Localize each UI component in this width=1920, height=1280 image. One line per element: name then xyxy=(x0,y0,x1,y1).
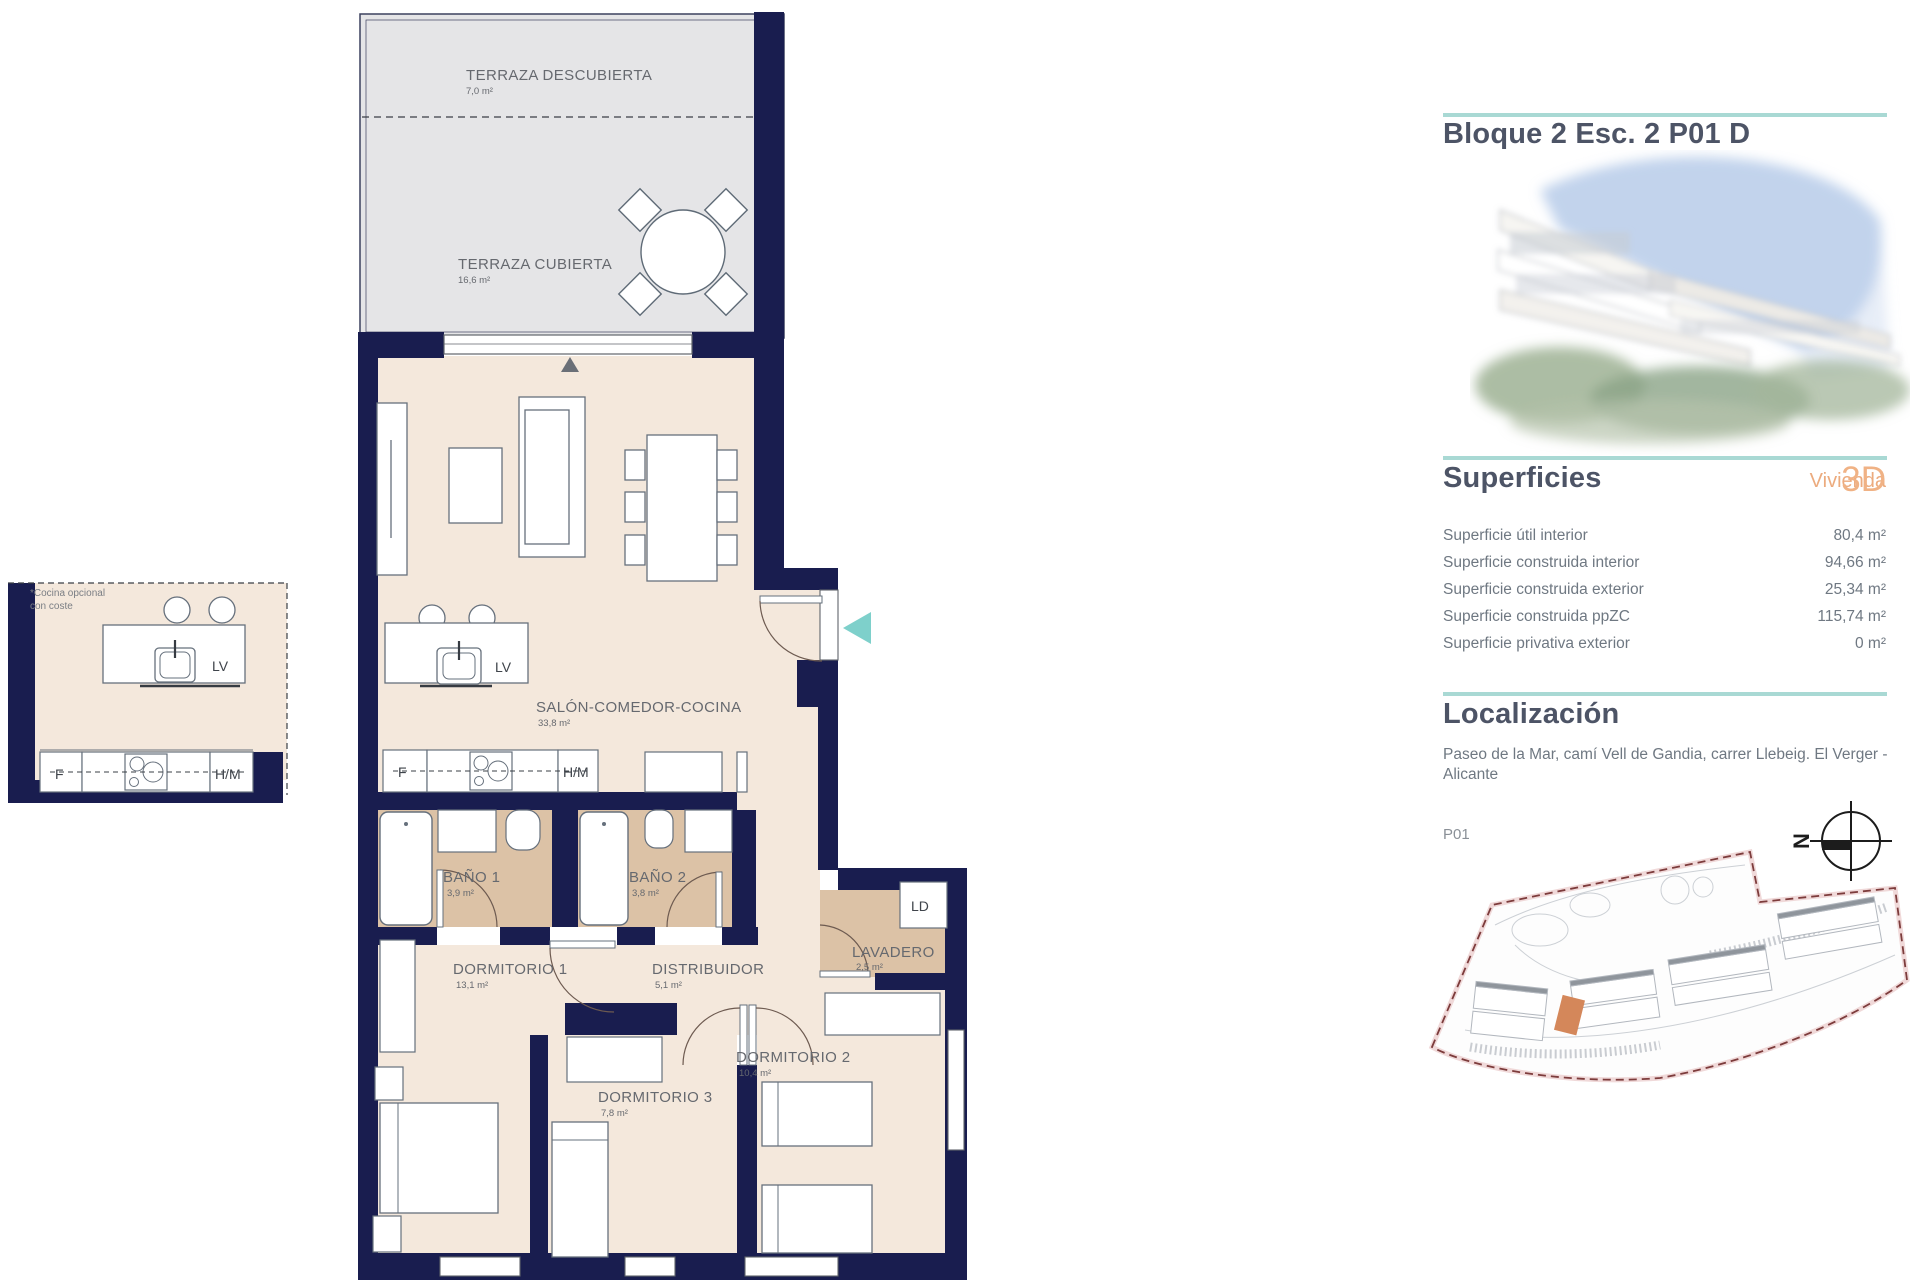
row-value: 0 m² xyxy=(1855,630,1886,657)
dishwasher-label: LV xyxy=(495,659,512,675)
hall-cabinet xyxy=(645,752,722,792)
building-illustration xyxy=(1470,150,1910,455)
room-area-salon: 33,8 m² xyxy=(538,718,570,729)
row-label: Superficie construida interior xyxy=(1443,549,1639,576)
washbasin xyxy=(438,810,496,852)
room-area-bano2: 3,8 m² xyxy=(632,888,659,899)
terrace: TERRAZA DESCUBIERTA 7,0 m² TERRAZA CUBIE… xyxy=(360,12,784,338)
row-value: 115,74 m² xyxy=(1817,603,1886,630)
table-row: Superficie construida ppZC 115,74 m² xyxy=(1443,603,1886,630)
room-label-bano1: BAÑO 1 xyxy=(443,869,500,886)
coffee-table xyxy=(449,448,502,523)
room-label-lavadero: LAVADERO xyxy=(852,944,935,961)
room-area-distribuidor: 5,1 m² xyxy=(655,980,682,991)
wardrobe xyxy=(567,1037,662,1082)
floor-plan: TERRAZA DESCUBIERTA 7,0 m² TERRAZA CUBIE… xyxy=(0,0,1000,1280)
svg-text:F: F xyxy=(55,766,64,782)
page: TERRAZA DESCUBIERTA 7,0 m² TERRAZA CUBIE… xyxy=(0,0,1920,1280)
room-label-terraza-cubierta: TERRAZA CUBIERTA xyxy=(458,256,612,273)
superficies-heading: Superficies xyxy=(1443,462,1602,495)
bed xyxy=(552,1122,608,1257)
table-row: Superficie privativa exterior 0 m² xyxy=(1443,630,1886,657)
row-label: Superficie construida exterior xyxy=(1443,576,1644,603)
localizacion-divider xyxy=(1443,692,1887,696)
wardrobe xyxy=(825,993,940,1035)
svg-text:H/M: H/M xyxy=(215,766,241,782)
washbasin xyxy=(685,810,732,852)
entrance-arrow-icon xyxy=(843,612,871,644)
room-label-bano2: BAÑO 2 xyxy=(629,869,686,886)
optional-kitchen-note: *Cocina opcional xyxy=(30,588,105,599)
room-area-dormitorio2: 10,4 m² xyxy=(739,1068,771,1079)
room-label-dormitorio1: DORMITORIO 1 xyxy=(453,961,568,978)
room-area-lavadero: 2,5 m² xyxy=(856,962,883,973)
kitchen-island: LV xyxy=(385,623,528,686)
room-area-terraza-descubierta: 7,0 m² xyxy=(466,86,493,97)
terrace-window xyxy=(444,335,692,354)
row-value: 25,34 m² xyxy=(1825,576,1886,603)
room-label-dormitorio2: DORMITORIO 2 xyxy=(736,1049,851,1066)
nightstand xyxy=(373,1216,401,1252)
floor-corridor xyxy=(756,590,820,1035)
nightstand xyxy=(375,1067,403,1100)
row-value: 80,4 m² xyxy=(1833,522,1886,549)
room-label-distribuidor: DISTRIBUIDOR xyxy=(652,961,764,978)
table-row: Superficie útil interior 80,4 m² xyxy=(1443,522,1886,549)
room-label-salon: SALÓN-COMEDOR-COCINA xyxy=(536,699,742,716)
dining-table xyxy=(647,435,717,581)
north-compass-icon: N xyxy=(1789,801,1892,881)
toilet xyxy=(645,810,673,848)
site-plan: N xyxy=(1425,795,1920,1105)
kitchen-counter: F H/M xyxy=(383,750,747,792)
room-area-dormitorio1: 13,1 m² xyxy=(456,980,488,991)
door-leaf xyxy=(550,941,615,948)
room-area-dormitorio3: 7,8 m² xyxy=(601,1108,628,1119)
svg-text:con coste: con coste xyxy=(30,601,73,612)
row-label: Superficie útil interior xyxy=(1443,522,1588,549)
terrace-right-wall xyxy=(754,12,784,338)
sideboard xyxy=(377,403,407,575)
page-title: Bloque 2 Esc. 2 P01 D xyxy=(1443,118,1750,151)
toilet xyxy=(506,810,540,850)
table-row: Superficie construida interior 94,66 m² xyxy=(1443,549,1886,576)
foliage xyxy=(1475,347,1910,444)
svg-text:LV: LV xyxy=(212,658,229,674)
vivienda-type: 3D xyxy=(1810,460,1886,500)
room-label-terraza-descubierta: TERRAZA DESCUBIERTA xyxy=(466,67,652,84)
superficies-table: Superficie útil interior 80,4 m² Superfi… xyxy=(1443,522,1886,657)
wardrobe xyxy=(380,940,415,1052)
shower xyxy=(380,812,432,925)
table-row: Superficie construida exterior 25,34 m² xyxy=(1443,576,1886,603)
localizacion-heading: Localización xyxy=(1443,698,1619,731)
room-label-dormitorio3: DORMITORIO 3 xyxy=(598,1089,713,1106)
fridge-label: F xyxy=(398,764,407,780)
row-value: 94,66 m² xyxy=(1825,549,1886,576)
washing-machine-label: LD xyxy=(911,898,929,914)
room-area-bano1: 3,9 m² xyxy=(447,888,474,899)
stool xyxy=(164,597,190,623)
row-label: Superficie construida ppZC xyxy=(1443,603,1630,630)
room-area-terraza-cubierta: 16,6 m² xyxy=(458,275,490,286)
hall-door-leaf xyxy=(737,752,747,792)
title-divider xyxy=(1443,113,1887,117)
row-label: Superficie privativa exterior xyxy=(1443,630,1630,657)
oven-label: H/M xyxy=(563,764,589,780)
north-letter: N xyxy=(1789,833,1814,849)
entry-door-leaf xyxy=(760,596,822,603)
shower xyxy=(580,812,628,925)
address-text: Paseo de la Mar, camí Vell de Gandia, ca… xyxy=(1443,745,1911,785)
optional-kitchen-detail: *Cocina opcional con coste LV F H/M xyxy=(8,583,287,803)
stool xyxy=(209,597,235,623)
